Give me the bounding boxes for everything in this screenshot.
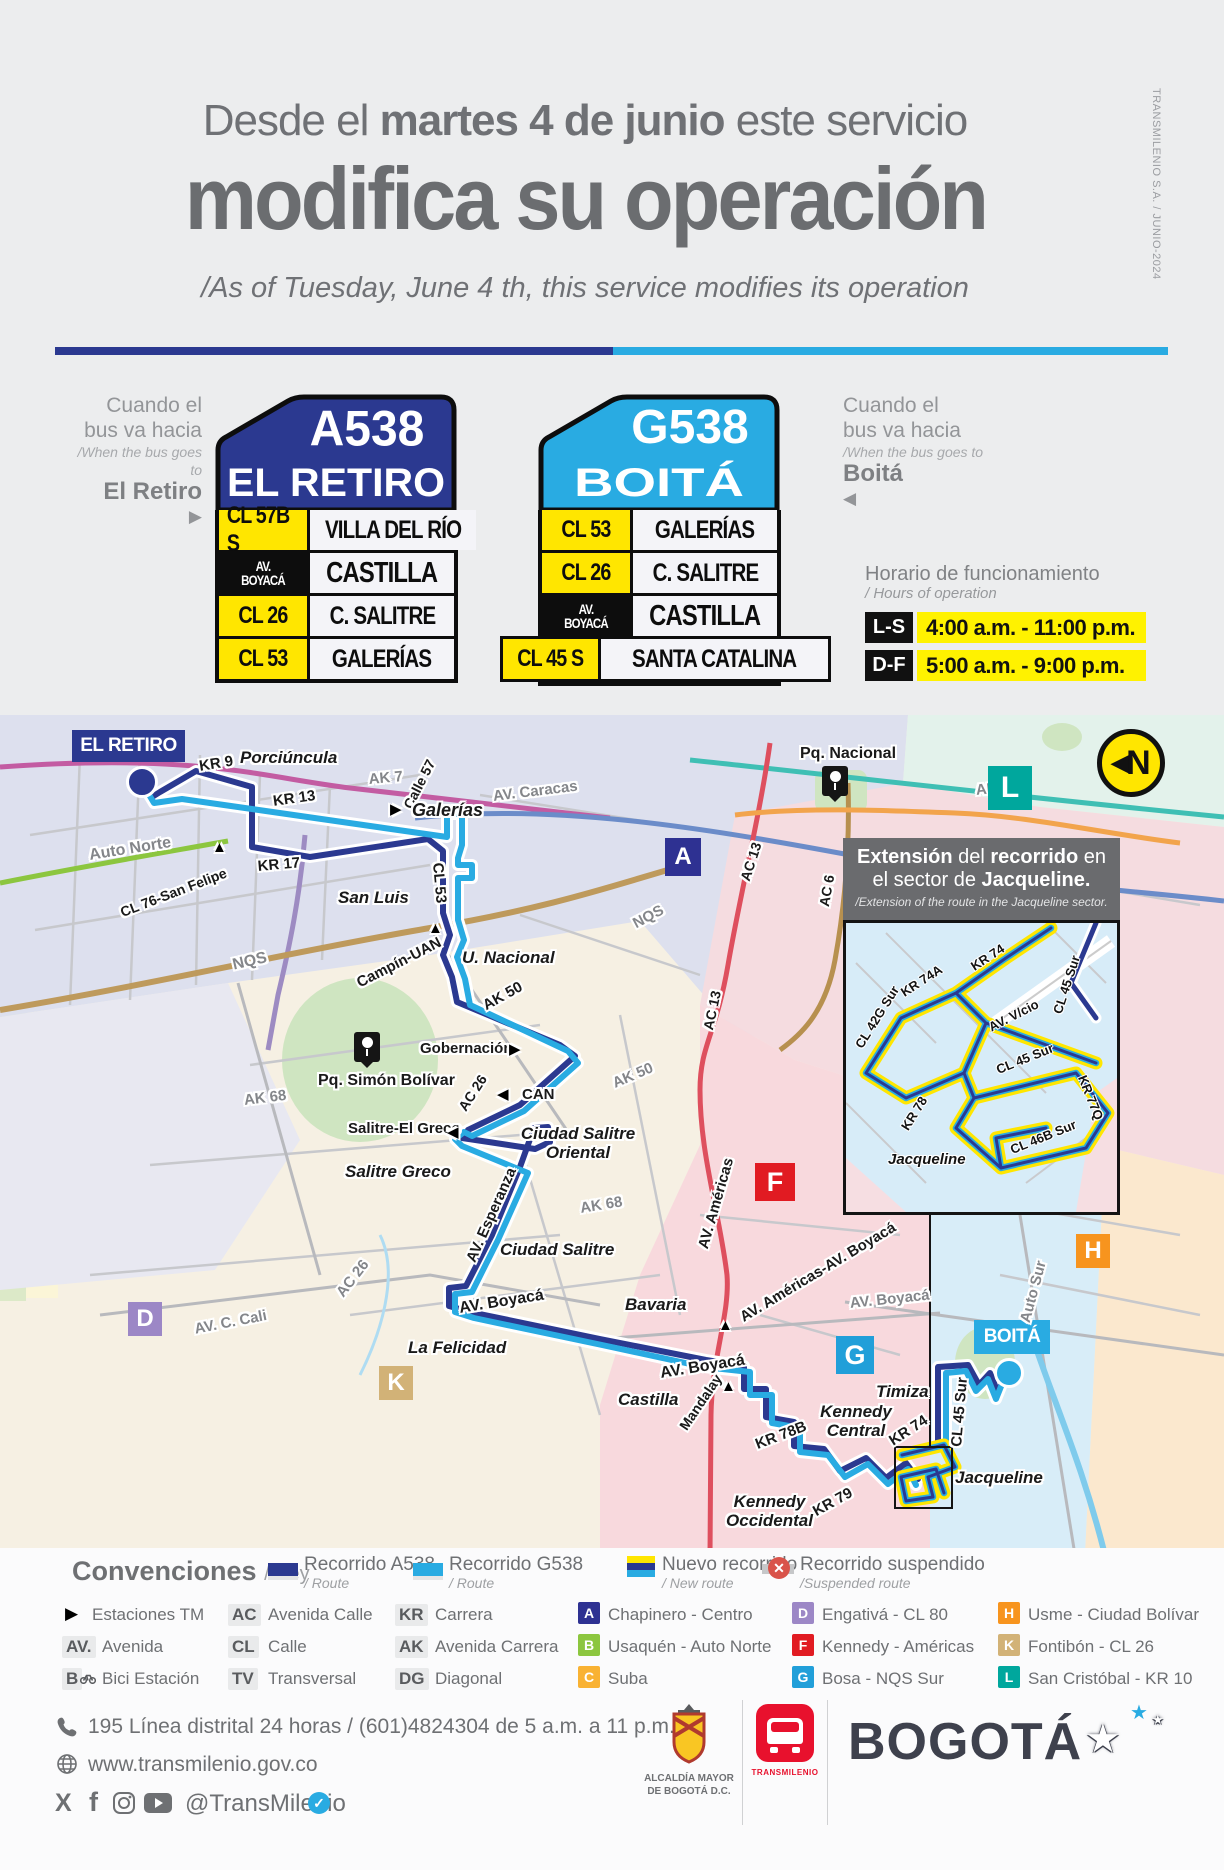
transmilenio-logo: [756, 1704, 814, 1762]
station-icon-campin: ▲: [428, 921, 443, 936]
instagram-icon[interactable]: [112, 1791, 136, 1815]
map-label-kennedy-central: Kennedy Central: [818, 1402, 894, 1440]
map-label-can: CAN: [522, 1086, 555, 1103]
sign-row: CL 57B SVILLA DEL RÍO: [219, 510, 454, 550]
map-label-bavaria: Bavaria: [625, 1295, 686, 1315]
terminus-el-retiro[interactable]: EL RETIRO: [72, 730, 185, 762]
map-label-san-luis: San Luis: [338, 888, 409, 908]
map-label-jacqueline: Jacqueline: [955, 1468, 1043, 1488]
map-label-pq-nacional: Pq. Nacional: [800, 745, 896, 763]
bogota-star-small-cyan-icon: ★: [1130, 1700, 1148, 1725]
arrow-right-icon: ▶: [62, 504, 202, 529]
page-title: modifica su operación: [20, 148, 1150, 250]
footer-section: [0, 1548, 1224, 1870]
route-sign-g538: G538 BOITÁ CL 53GALERÍAS CL 26C. SALITRE…: [538, 388, 781, 686]
globe-icon: [55, 1752, 79, 1776]
sign-g538-stops: CL 53GALERÍAS CL 26C. SALITRE AV. BOYACÁ…: [538, 510, 781, 686]
sign-a538-name-svgtext: EL RETIRO: [227, 461, 445, 505]
zone-marker-f: F: [755, 1163, 795, 1201]
verified-badge-icon: ✓: [308, 1792, 330, 1814]
youtube-icon[interactable]: [144, 1793, 172, 1813]
legend-swatch-a538: [268, 1563, 298, 1576]
zone-marker-l: L: [988, 766, 1032, 810]
sign-row: CL 53GALERÍAS: [219, 636, 454, 679]
poster: Desde el martes 4 de junio este servicio…: [0, 0, 1224, 1870]
monument-icon-pq-nacional: [822, 766, 848, 796]
hours-subtitle: / Hours of operation: [865, 585, 997, 602]
sign-g538-header-shape: G538 BOITÁ: [538, 388, 781, 510]
compass-north-icon: ◀N: [1097, 729, 1165, 797]
monument-icon-simon-bolivar: [354, 1032, 380, 1062]
direction-label-el-retiro: Cuando el bus va hacia /When the bus goe…: [62, 393, 202, 529]
hours-title: Horario de funcionamiento: [865, 563, 1100, 586]
station-icon-san-felipe: ▲: [212, 840, 227, 855]
map-label-castilla: Castilla: [618, 1390, 678, 1410]
sign-row: CL 26C. SALITRE: [542, 550, 777, 593]
sign-row: CL 26C. SALITRE: [219, 593, 454, 636]
sign-a538-stops: CL 57B SVILLA DEL RÍO AV. BOYACÁCASTILLA…: [215, 510, 458, 683]
map-label-pq-simon-bolivar: Pq. Simón Bolívar: [318, 1072, 455, 1090]
sign-row-wide: CL 45 SSANTA CATALINA: [500, 636, 831, 682]
transmilenio-logo-text: TRANSMILENIO: [748, 1768, 822, 1777]
suspended-x-icon: ✕: [768, 1557, 790, 1579]
inset-title: Extensión del recorrido en el sector de …: [843, 838, 1120, 920]
sign-row: CL 53GALERÍAS: [542, 510, 777, 550]
station-icon-galerias: ▶: [390, 802, 402, 817]
map-label-u-nacional: U. Nacional: [462, 948, 555, 968]
header-subtitle-en: /As of Tuesday, June 4 th, this service …: [20, 272, 1150, 305]
logo-divider-2: [827, 1700, 828, 1825]
header-line1: Desde el martes 4 de junio este servicio: [20, 96, 1150, 146]
map-label-ak7: AK 7: [368, 768, 404, 788]
sign-g538-name-svgtext: BOITÁ: [574, 460, 744, 505]
facebook-icon[interactable]: f: [89, 1787, 98, 1818]
sign-a538-header-shape: A538 EL RETIRO: [215, 388, 458, 510]
map-label-la-felicidad: La Felicidad: [408, 1338, 506, 1358]
map-label-galerias: Galerías: [412, 800, 483, 821]
website-link[interactable]: www.transmilenio.gov.co: [88, 1753, 318, 1777]
direction-label-boita: Cuando el bus va hacia /When the bus goe…: [843, 393, 1063, 511]
zone-marker-k: K: [379, 1366, 413, 1400]
boita-dot: [994, 1358, 1024, 1388]
legend-swatch-new-route: [627, 1556, 655, 1577]
zone-marker-d: D: [128, 1302, 162, 1336]
logo-divider-1: [742, 1700, 743, 1825]
inset-label-jacqueline: Jacqueline: [888, 1151, 966, 1168]
hours-time-ls: 4:00 a.m. - 11:00 p.m.: [917, 612, 1146, 643]
bogota-wordmark: BOGOTÁ: [848, 1712, 1082, 1772]
route-sign-a538: A538 EL RETIRO CL 57B SVILLA DEL RÍO AV.…: [215, 388, 458, 683]
station-icon-gobernacion: ▶: [509, 1042, 521, 1057]
zone-marker-a: A: [665, 838, 701, 876]
map-label-timiza: Timiza: [876, 1382, 929, 1402]
map-label-kennedy-occidental: Kennedy Occidental: [722, 1492, 817, 1530]
sign-row: AV. BOYACÁCASTILLA: [542, 593, 777, 636]
map-label-cl53: CL 53: [429, 862, 449, 904]
edition-vertical-text: TRANSMILENIO S.A. / JUNIO-2024: [1150, 88, 1162, 280]
phone-icon: [56, 1716, 78, 1738]
station-icon-el-greco: ◀: [447, 1125, 459, 1140]
zone-marker-h: H: [1076, 1234, 1110, 1268]
alcaldia-crest-logo: [664, 1702, 714, 1764]
hours-time-df: 5:00 a.m. - 9:00 p.m.: [917, 650, 1146, 681]
station-icon-americas-boyaca: ▲: [718, 1318, 733, 1333]
sign-g538-code-svgtext: G538: [631, 401, 748, 454]
terminus-boita[interactable]: BOITÁ: [974, 1320, 1050, 1354]
inset-map[interactable]: KR 74 CL 45 Sur KR 74A CL 42G Sur AV. V/…: [843, 920, 1120, 1215]
bici-icon: [80, 1672, 96, 1684]
bogota-star-small-white-icon: ★: [1152, 1712, 1164, 1728]
x-icon[interactable]: X: [55, 1789, 72, 1818]
sign-a538-code-svgtext: A538: [310, 401, 425, 457]
divider-navy: [55, 347, 613, 355]
map-label-porciuncula: Porciúncula: [240, 748, 337, 768]
el-retiro-dot: [126, 766, 158, 798]
map-label-salitre-el-greco: Salitre-El Greco: [348, 1120, 461, 1137]
zone-marker-g: G: [836, 1336, 874, 1374]
bogota-star-big-icon: ★: [1085, 1716, 1121, 1762]
map-label-ciudad-salitre: Ciudad Salitre: [500, 1240, 614, 1260]
alcaldia-text: ALCALDÍA MAYORDE BOGOTÁ D.C.: [630, 1772, 748, 1798]
map-label-gobernacion: Gobernación: [420, 1040, 513, 1057]
legend-swatch-g538: [413, 1563, 443, 1576]
station-icon-mandalay: ▲: [721, 1379, 736, 1394]
station-icon-can: ◀: [497, 1087, 509, 1102]
map-label-cs-oriental: Ciudad Salitre Oriental: [518, 1124, 638, 1162]
hours-days-ls: L-S: [865, 612, 913, 643]
hours-days-df: D-F: [865, 650, 913, 681]
divider-cyan: [613, 347, 1168, 355]
tm-station-icon: ▶: [65, 1604, 78, 1624]
phone-line: 195 Línea distrital 24 horas / (601)4824…: [88, 1715, 675, 1739]
arrow-left-icon: ◀: [843, 486, 1063, 511]
map-label-salitre-greco: Salitre Greco: [345, 1162, 451, 1182]
